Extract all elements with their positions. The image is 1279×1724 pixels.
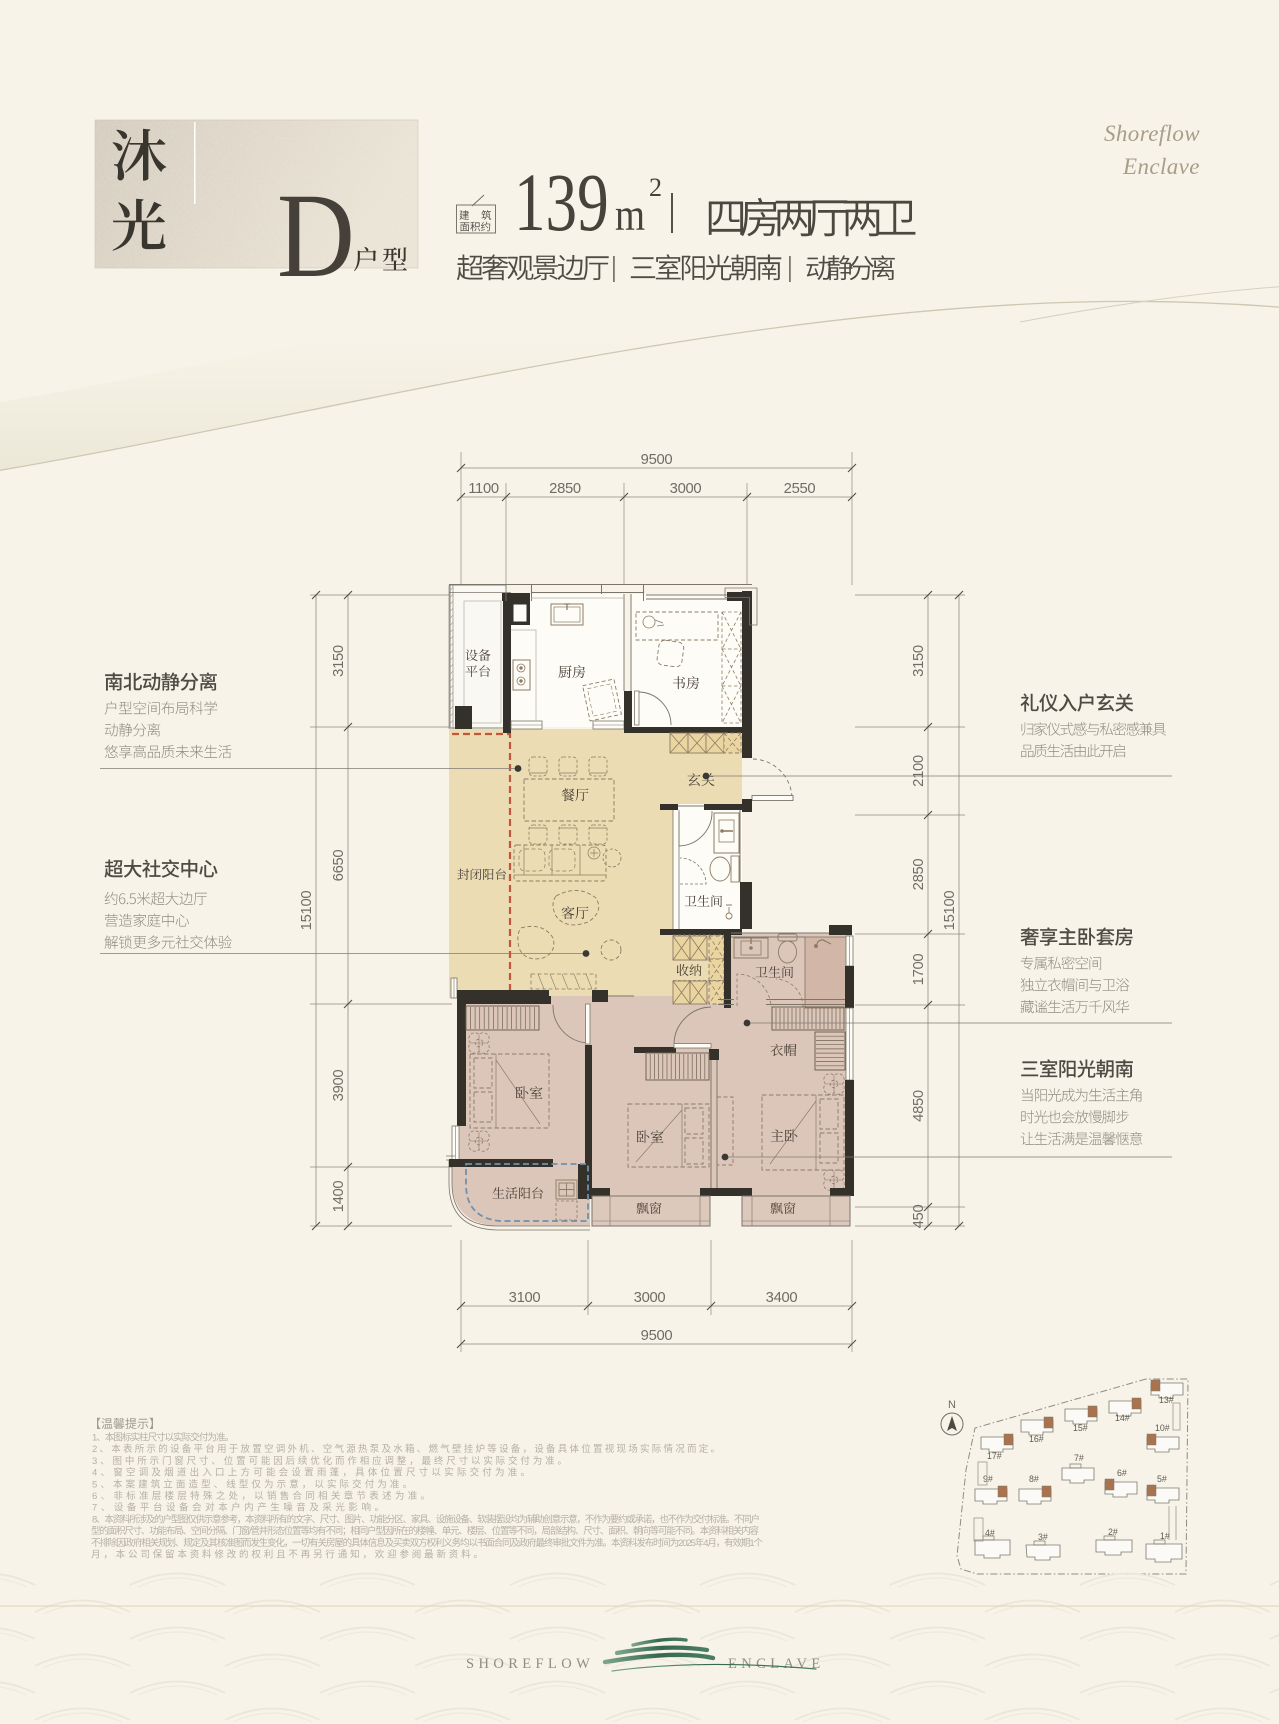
svg-text:1400: 1400 <box>331 1181 347 1213</box>
svg-text:3150: 3150 <box>331 645 347 677</box>
svg-text:3000: 3000 <box>670 481 702 497</box>
svg-text:5#: 5# <box>1157 1474 1167 1484</box>
svg-text:D: D <box>277 168 355 302</box>
svg-text:SHOREFLOW: SHOREFLOW <box>466 1656 594 1672</box>
svg-text:15#: 15# <box>1073 1423 1088 1433</box>
svg-text:8、本资料所涉及的户型图仅供示意参考，本资料所有的文字、尺寸: 8、本资料所涉及的户型图仅供示意参考，本资料所有的文字、尺寸、图片、功能分区、家… <box>92 1513 760 1525</box>
svg-text:4#: 4# <box>985 1528 995 1538</box>
svg-text:5、本案建筑立面造型、线型仅为示意，以实际交付为准。: 5、本案建筑立面造型、线型仅为示意，以实际交付为准。 <box>92 1478 412 1490</box>
svg-text:7#: 7# <box>1074 1453 1084 1463</box>
svg-text:10#: 10# <box>1155 1423 1170 1433</box>
svg-text:14#: 14# <box>1115 1413 1130 1423</box>
svg-text:2550: 2550 <box>784 481 816 497</box>
svg-text:3100: 3100 <box>509 1290 541 1306</box>
svg-text:3400: 3400 <box>766 1290 798 1306</box>
svg-text:3900: 3900 <box>331 1070 347 1102</box>
svg-text:9500: 9500 <box>641 452 673 468</box>
svg-text:15100: 15100 <box>299 891 315 931</box>
svg-text:Enclave: Enclave <box>1122 154 1200 179</box>
svg-text:2: 2 <box>649 173 662 202</box>
svg-text:不排除因政府相关规划、规定及其核准图而发生变化，一切有关房屋: 不排除因政府相关规划、规定及其核准图而发生变化，一切有关房屋的具体信息及买卖双方… <box>91 1537 763 1549</box>
svg-text:ENCLAVE: ENCLAVE <box>728 1656 825 1672</box>
svg-text:2、本表所示的设备平台用于放置空调外机、空气源热泵及水箱、燃: 2、本表所示的设备平台用于放置空调外机、空气源热泵及水箱、燃气壁挂炉等设备，设备… <box>92 1443 720 1455</box>
svg-text:2100: 2100 <box>911 755 927 787</box>
svg-text:型的面积尺寸、功能布局、空间分隔、门窗/管井形态位置等均有不: 型的面积尺寸、功能布局、空间分隔、门窗/管井形态位置等均有不同；相同户型因所在的… <box>91 1525 759 1537</box>
svg-text:4、窗空调及烟道出入口上方可能会设置雨蓬，具体位置尺寸以实际: 4、窗空调及烟道出入口上方可能会设置雨蓬，具体位置尺寸以实际交付为准。 <box>92 1467 530 1479</box>
svg-text:6#: 6# <box>1117 1468 1127 1478</box>
svg-text:3、图中所示门窗尺寸、位置可能因后续优化而作相应调整，最终尺: 3、图中所示门窗尺寸、位置可能因后续优化而作相应调整，最终尺寸以实际交付为准。 <box>92 1455 567 1467</box>
svg-text:3#: 3# <box>1038 1532 1048 1542</box>
svg-text:13#: 13# <box>1159 1395 1174 1405</box>
svg-text:9500: 9500 <box>641 1328 673 1344</box>
svg-text:6650: 6650 <box>331 850 347 882</box>
svg-text:4850: 4850 <box>911 1090 927 1122</box>
svg-text:N: N <box>948 1399 956 1411</box>
svg-text:Shoreflow: Shoreflow <box>1104 121 1200 146</box>
svg-text:m: m <box>615 190 645 241</box>
svg-text:1#: 1# <box>1160 1531 1170 1541</box>
svg-text:1、本图标实柱尺寸以实际交付为准。: 1、本图标实柱尺寸以实际交付为准。 <box>92 1432 234 1444</box>
svg-text:16#: 16# <box>1029 1434 1044 1444</box>
svg-text:3000: 3000 <box>634 1290 666 1306</box>
svg-text:17#: 17# <box>987 1451 1002 1461</box>
svg-text:2#: 2# <box>1108 1527 1118 1537</box>
svg-text:1700: 1700 <box>911 954 927 986</box>
svg-text:2850: 2850 <box>549 481 581 497</box>
svg-text:8#: 8# <box>1029 1474 1039 1484</box>
svg-text:3150: 3150 <box>911 645 927 677</box>
svg-text:2850: 2850 <box>911 859 927 891</box>
svg-text:15100: 15100 <box>942 891 958 931</box>
svg-text:9#: 9# <box>983 1474 993 1484</box>
svg-text:7、设备平台设备会对本户内产生噪音及采光影响。: 7、设备平台设备会对本户内产生噪音及采光影响。 <box>92 1502 384 1514</box>
svg-text:1100: 1100 <box>468 481 499 497</box>
svg-text:450: 450 <box>911 1205 927 1229</box>
svg-text:139: 139 <box>514 156 609 248</box>
